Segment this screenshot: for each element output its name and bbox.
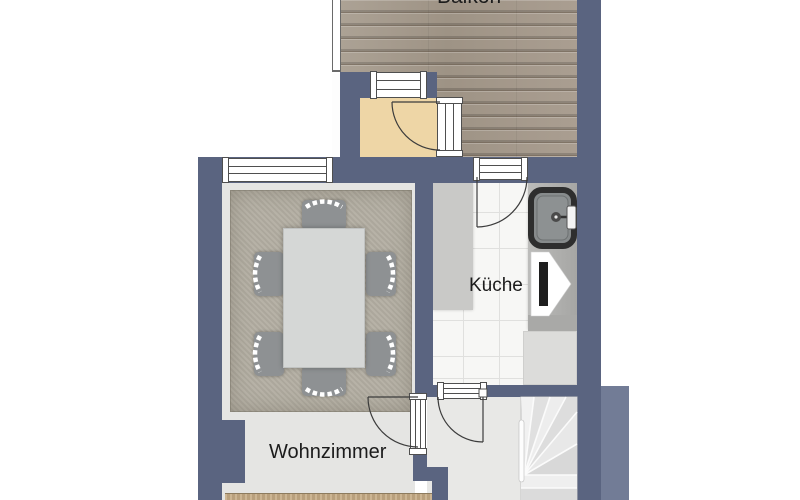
wall-pillar	[222, 420, 245, 483]
kitchen-counter-left	[433, 183, 473, 310]
dining-table	[283, 228, 365, 368]
living-room-door	[410, 393, 426, 455]
dining-chair	[254, 332, 284, 376]
kitchen-balcony-door	[473, 158, 528, 180]
wall	[577, 0, 601, 500]
living-room-window	[222, 158, 333, 182]
kitchen-label: Küche	[469, 275, 523, 297]
dining-chair	[302, 200, 346, 230]
balcony-railing	[332, 0, 341, 72]
wall	[415, 183, 433, 397]
dining-chair	[366, 252, 396, 296]
dining-chair	[302, 366, 346, 396]
wall-exterior-light	[601, 386, 629, 500]
dining-chair	[366, 332, 396, 376]
balcony-label: Balkon	[437, 0, 501, 9]
entry-room-floor	[360, 98, 437, 157]
kitchen-cabinet	[523, 331, 577, 385]
dining-chair	[254, 252, 284, 296]
entry-room-window	[370, 72, 427, 98]
living-room-label: Wohnzimmer	[269, 441, 386, 464]
sideboard-wood-strip	[225, 493, 437, 500]
wall-step	[413, 467, 448, 481]
kitchen-counter-edge	[528, 315, 577, 331]
kitchen-counter-right	[528, 183, 577, 330]
kitchen-hall-door	[437, 383, 487, 399]
balcony-door	[437, 97, 462, 157]
hallway-floor	[427, 397, 577, 500]
wall-step	[432, 481, 448, 500]
wall	[340, 72, 372, 98]
wall	[198, 157, 222, 500]
floor-plan: Balkon Küche Wohnzimmer	[0, 0, 800, 500]
